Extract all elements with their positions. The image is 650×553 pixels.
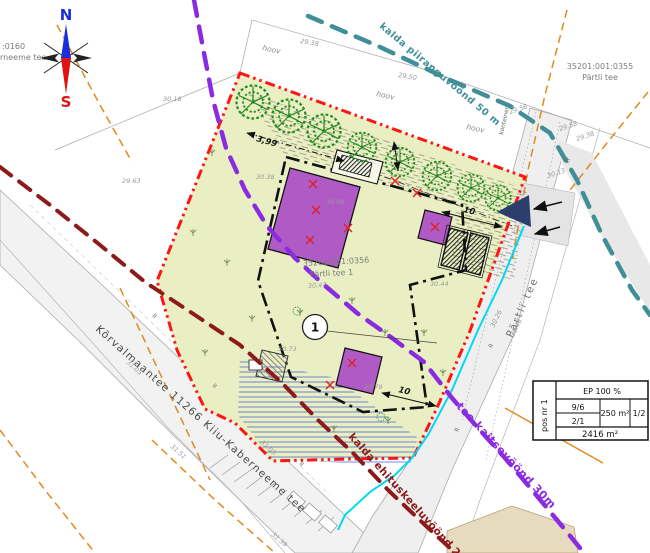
table-usage: EP 100 % — [583, 387, 621, 396]
left-parcel-name: rneeme tee — [0, 53, 46, 62]
elevation: 30.18 — [163, 95, 182, 103]
yard-label: hoov — [466, 122, 486, 135]
table-storeys: 9/6 — [572, 403, 585, 412]
table-ratio: 2/1 — [572, 417, 585, 426]
elevation: 30.44 — [430, 280, 449, 288]
site-plan-canvas: 1 :0160 rneeme tee 35201:001:0355 Pärtli… — [0, 0, 650, 553]
left-parcel-code: :0160 — [2, 42, 25, 51]
elevation: 29.63 — [122, 177, 141, 185]
table-pos: pos nr 1 — [540, 399, 549, 432]
table-plot-area: 2416 m² — [582, 430, 618, 440]
elevation: 30.86 — [326, 198, 345, 206]
elevation: 29.50 — [398, 71, 418, 82]
shore-restriction-label: kalda piiranguvöönd 50 m — [377, 21, 502, 129]
right-parcel-code: 35201:001:0355 — [567, 62, 633, 71]
yard-label: hoov — [262, 43, 282, 56]
elevation: 30.73 — [278, 345, 297, 353]
south-needle-icon — [61, 58, 71, 94]
info-table: pos nr 1 EP 100 % 9/6 2/1 250 m² 1/2 241… — [533, 381, 648, 440]
road-wedge — [558, 140, 650, 312]
right-parcel-name: Pärtli tee — [582, 73, 618, 82]
position-number: 1 — [311, 321, 319, 335]
elevation: 30.78 — [364, 383, 383, 391]
compass-rose: N S — [40, 6, 92, 111]
yard-label: hoov — [376, 89, 396, 102]
compass-south-label: S — [61, 93, 72, 111]
beige-area — [447, 506, 578, 553]
table-building-area: 250 m² — [601, 409, 630, 418]
compass-north-label: N — [60, 6, 73, 24]
north-needle-icon — [61, 24, 71, 58]
site-plan-page: 1 :0160 rneeme tee 35201:001:0355 Pärtli… — [0, 0, 650, 553]
slope-tick: II — [151, 312, 159, 320]
elevation: 29.38 — [575, 130, 595, 143]
table-height: 1/2 — [633, 409, 646, 418]
elevation: 30.38 — [256, 173, 275, 181]
center-parcel-elev: 30.47 — [308, 281, 328, 290]
